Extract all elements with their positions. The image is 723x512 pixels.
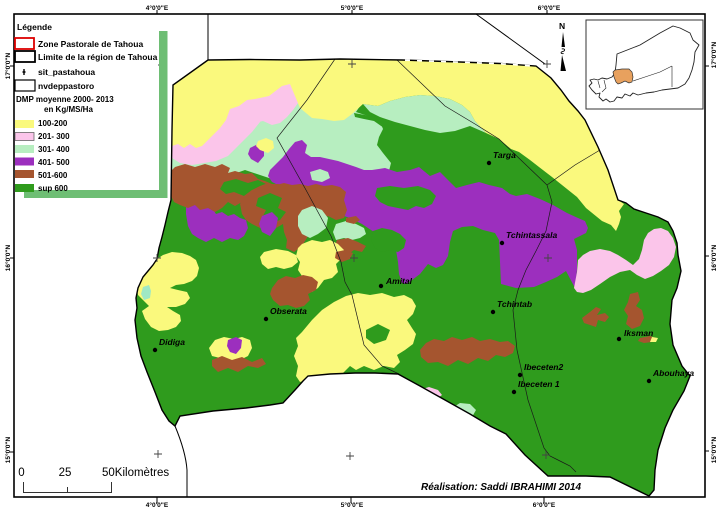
svg-text:16°0'0"N: 16°0'0"N [4, 245, 12, 272]
svg-text:6°0'0"E: 6°0'0"E [533, 501, 556, 509]
svg-text:17°0'0"N: 17°0'0"N [4, 53, 12, 80]
svg-text:6°0'0"E: 6°0'0"E [538, 4, 561, 12]
svg-text:Légende: Légende [17, 22, 52, 32]
svg-text:Limite de la région de Tahoua: Limite de la région de Tahoua [38, 52, 158, 62]
svg-text:nvdeppastoro: nvdeppastoro [38, 81, 94, 91]
svg-text:100-200: 100-200 [38, 119, 68, 128]
svg-text:16°0'0"N: 16°0'0"N [710, 245, 718, 272]
svg-text:Didiga: Didiga [159, 337, 185, 347]
svg-text:Réalisation: Saddi IBRAHIMI 20: Réalisation: Saddi IBRAHIMI 2014 [421, 482, 581, 493]
svg-text:15°0'0"N: 15°0'0"N [4, 437, 12, 464]
svg-text:4°0'0"E: 4°0'0"E [146, 501, 169, 509]
svg-text:Tchintab: Tchintab [497, 299, 532, 309]
svg-text:25: 25 [59, 467, 72, 479]
svg-text:5°0'0"E: 5°0'0"E [341, 501, 364, 509]
svg-text:201- 300: 201- 300 [38, 132, 70, 141]
svg-text:N: N [559, 21, 565, 31]
svg-text:17°0'0"N: 17°0'0"N [710, 42, 718, 69]
svg-text:sit_pastahoua: sit_pastahoua [38, 67, 95, 77]
svg-text:5°0'0"E: 5°0'0"E [341, 4, 364, 12]
svg-text:401- 500: 401- 500 [38, 158, 70, 167]
svg-text:Abouhaya: Abouhaya [652, 368, 694, 378]
svg-text:Obserata: Obserata [270, 306, 307, 316]
svg-text:Tchintassala: Tchintassala [506, 230, 557, 240]
svg-text:Amital: Amital [385, 276, 413, 286]
svg-text:0: 0 [18, 467, 24, 479]
svg-text:501-600: 501-600 [38, 171, 68, 180]
svg-text:Iksman: Iksman [624, 328, 653, 338]
svg-text:4°0'0"E: 4°0'0"E [146, 4, 169, 12]
svg-text:Ibeceten2: Ibeceten2 [524, 362, 563, 372]
svg-text:DMP moyenne 2000- 2013: DMP moyenne 2000- 2013 [16, 95, 114, 104]
svg-text:15°0'0"N: 15°0'0"N [710, 437, 718, 464]
svg-text:en Kg/MS/Ha: en Kg/MS/Ha [44, 105, 93, 114]
svg-text:Targa: Targa [493, 150, 516, 160]
svg-text:sup 600: sup 600 [38, 184, 68, 193]
svg-text:301- 400: 301- 400 [38, 145, 70, 154]
svg-text:Zone Pastorale de Tahoua: Zone Pastorale de Tahoua [38, 39, 143, 49]
svg-text:50Kilomètres: 50Kilomètres [102, 467, 169, 479]
svg-text:Ibeceten 1: Ibeceten 1 [518, 379, 560, 389]
